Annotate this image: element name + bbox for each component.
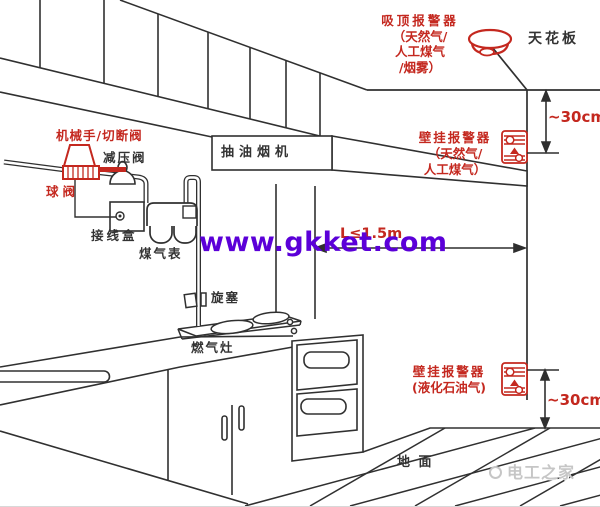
- gas-piping: [4, 162, 199, 326]
- wall-alarm-lower-label: 壁挂报警器 (液化石油气): [396, 364, 502, 395]
- brand-watermark-text: 电工之家: [507, 465, 575, 480]
- label-line: /烟雾）: [372, 60, 468, 76]
- dimension-top-label: ~30cm: [548, 110, 600, 125]
- wall-alarm-icon-lower: [502, 363, 527, 395]
- mech-valve-label: 机械手/切断阀: [56, 128, 143, 143]
- label-line: (液化石油气): [396, 380, 502, 396]
- gas-meter-icon: [147, 203, 197, 243]
- wall-alarm-upper-label: 壁挂报警器 （天然气/ 人工煤气）: [406, 130, 504, 178]
- ceiling-detector-icon: [469, 30, 511, 56]
- ball-valve-label: 球阀: [46, 184, 79, 199]
- site-watermark: www.gkket.com: [199, 235, 448, 250]
- label-line: 壁挂报警器: [406, 130, 504, 146]
- label-line: 壁挂报警器: [396, 364, 502, 380]
- wall-alarm-icon-upper: [502, 131, 527, 163]
- ceiling-label: 天花板: [528, 32, 579, 47]
- stove-label: 燃气灶: [191, 340, 235, 355]
- gas-meter-label: 煤气表: [139, 246, 183, 261]
- label-line: 吸顶报警器: [372, 13, 468, 29]
- pressure-valve-label: 减压阀: [103, 150, 147, 165]
- brand-logo-icon: [489, 466, 502, 479]
- label-line: 人工煤气: [372, 44, 468, 60]
- dimension-bottom-label: ~30cm: [547, 393, 600, 408]
- kitchen-gas-alarm-diagram: 吸顶报警器 （天然气/ 人工煤气 /烟雾） 天花板 壁挂报警器 （天然气/ 人工…: [0, 0, 600, 507]
- range-hood-label: 抽油烟机: [221, 145, 293, 160]
- counter-cabinets: [0, 335, 363, 504]
- brand-watermark: 电工之家: [489, 465, 575, 480]
- ground-label: 地 面: [397, 455, 434, 470]
- plug-valve-icon: [184, 293, 206, 308]
- junction-box-icon: [75, 179, 144, 231]
- junction-box-label: 接线盒: [91, 228, 138, 243]
- wall-lines: [367, 47, 600, 400]
- upper-cabinets: [0, 0, 367, 139]
- ceiling-detector-label: 吸顶报警器 （天然气/ 人工煤气 /烟雾）: [372, 13, 468, 75]
- plug-valve-label: 旋塞: [211, 290, 240, 305]
- label-line: （天然气/: [372, 29, 468, 45]
- label-line: （天然气/: [406, 146, 504, 162]
- label-line: 人工煤气）: [406, 162, 504, 178]
